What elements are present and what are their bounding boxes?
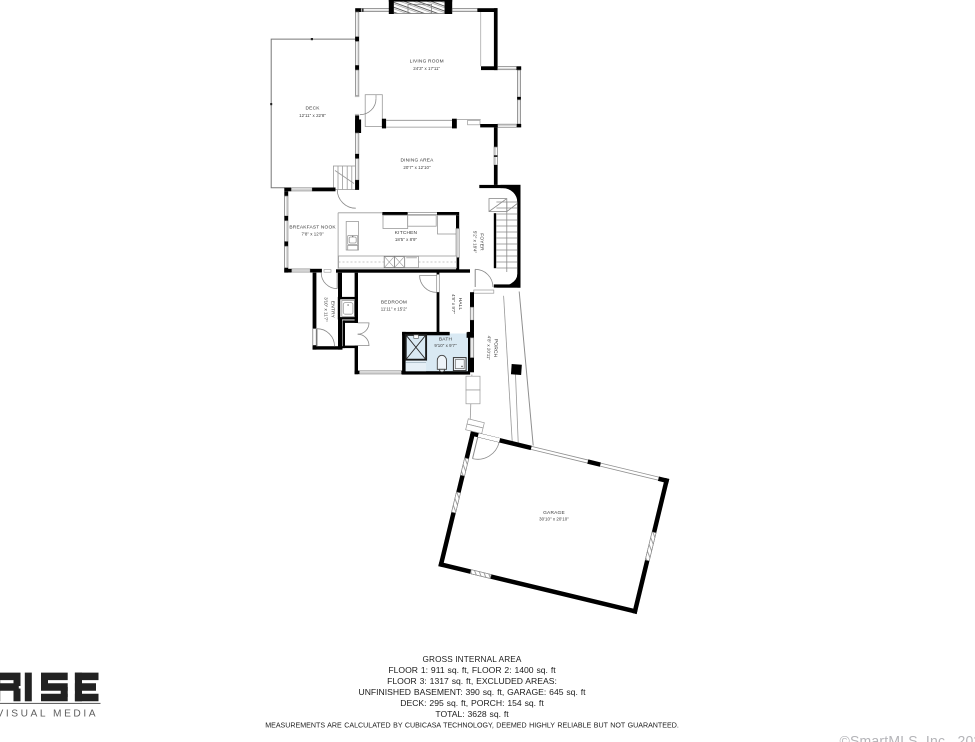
svg-text:5'2" x 18'4": 5'2" x 18'4" — [472, 231, 477, 254]
svg-text:UNFINISHED BASEMENT: 390 sq. f: UNFINISHED BASEMENT: 390 sq. ft, GARAGE:… — [358, 687, 586, 697]
svg-text:BREAKFAST NOOK: BREAKFAST NOOK — [289, 224, 336, 230]
svg-text:GARAGE: GARAGE — [543, 510, 565, 516]
svg-text:7'8" x 12'0": 7'8" x 12'0" — [301, 232, 324, 237]
svg-text:FOYER: FOYER — [478, 233, 484, 251]
svg-text:MEASUREMENTS ARE CALCULATED BY: MEASUREMENTS ARE CALCULATED BY CUBICASA … — [265, 722, 679, 730]
svg-text:4'8" x 20'11": 4'8" x 20'11" — [486, 336, 492, 361]
svg-text:20'7" x 12'10": 20'7" x 12'10" — [403, 165, 431, 170]
svg-text:BATH: BATH — [439, 337, 453, 343]
svg-text:FLOOR 3: 1317 sq. ft, EXCLUDED: FLOOR 3: 1317 sq. ft, EXCLUDED AREAS: — [387, 676, 557, 686]
svg-text:©SmartMLS, Inc., 2021: ©SmartMLS, Inc., 2021 — [840, 733, 975, 742]
svg-text:ENTRY: ENTRY — [330, 301, 336, 319]
svg-text:DECK: 295 sq. ft, PORCH: 154 s: DECK: 295 sq. ft, PORCH: 154 sq. ft — [400, 698, 544, 708]
svg-text:DINING AREA: DINING AREA — [400, 158, 434, 164]
svg-text:24'3" x 17'11": 24'3" x 17'11" — [413, 66, 440, 71]
svg-text:9'10" x 9'7": 9'10" x 9'7" — [434, 343, 457, 348]
svg-text:GROSS INTERNAL AREA: GROSS INTERNAL AREA — [423, 655, 522, 664]
svg-text:TOTAL: 3628 sq. ft: TOTAL: 3628 sq. ft — [435, 709, 509, 719]
svg-text:BEDROOM: BEDROOM — [381, 300, 407, 306]
svg-text:FLOOR 1: 911 sq. ft, FLOOR 2:: FLOOR 1: 911 sq. ft, FLOOR 2: 1400 sq. f… — [388, 665, 556, 675]
svg-text:DECK: DECK — [306, 106, 321, 112]
svg-text:30'10" x 20'10": 30'10" x 20'10" — [539, 517, 569, 522]
svg-text:11'11" x 15'2": 11'11" x 15'2" — [381, 307, 408, 312]
svg-text:12'11" x 22'8": 12'11" x 22'8" — [299, 113, 326, 118]
svg-text:3'10" x 11'7": 3'10" x 11'7" — [324, 297, 329, 322]
svg-text:18'5" x 8'9": 18'5" x 8'9" — [395, 237, 418, 242]
svg-text:VISUAL MEDIA: VISUAL MEDIA — [0, 709, 98, 720]
svg-text:KITCHEN: KITCHEN — [395, 230, 418, 236]
svg-text:PORCH: PORCH — [492, 339, 499, 358]
svg-text:4'8" x 9'7": 4'8" x 9'7" — [451, 294, 456, 314]
svg-text:LIVING ROOM: LIVING ROOM — [410, 59, 444, 65]
svg-text:HALL: HALL — [457, 298, 463, 311]
